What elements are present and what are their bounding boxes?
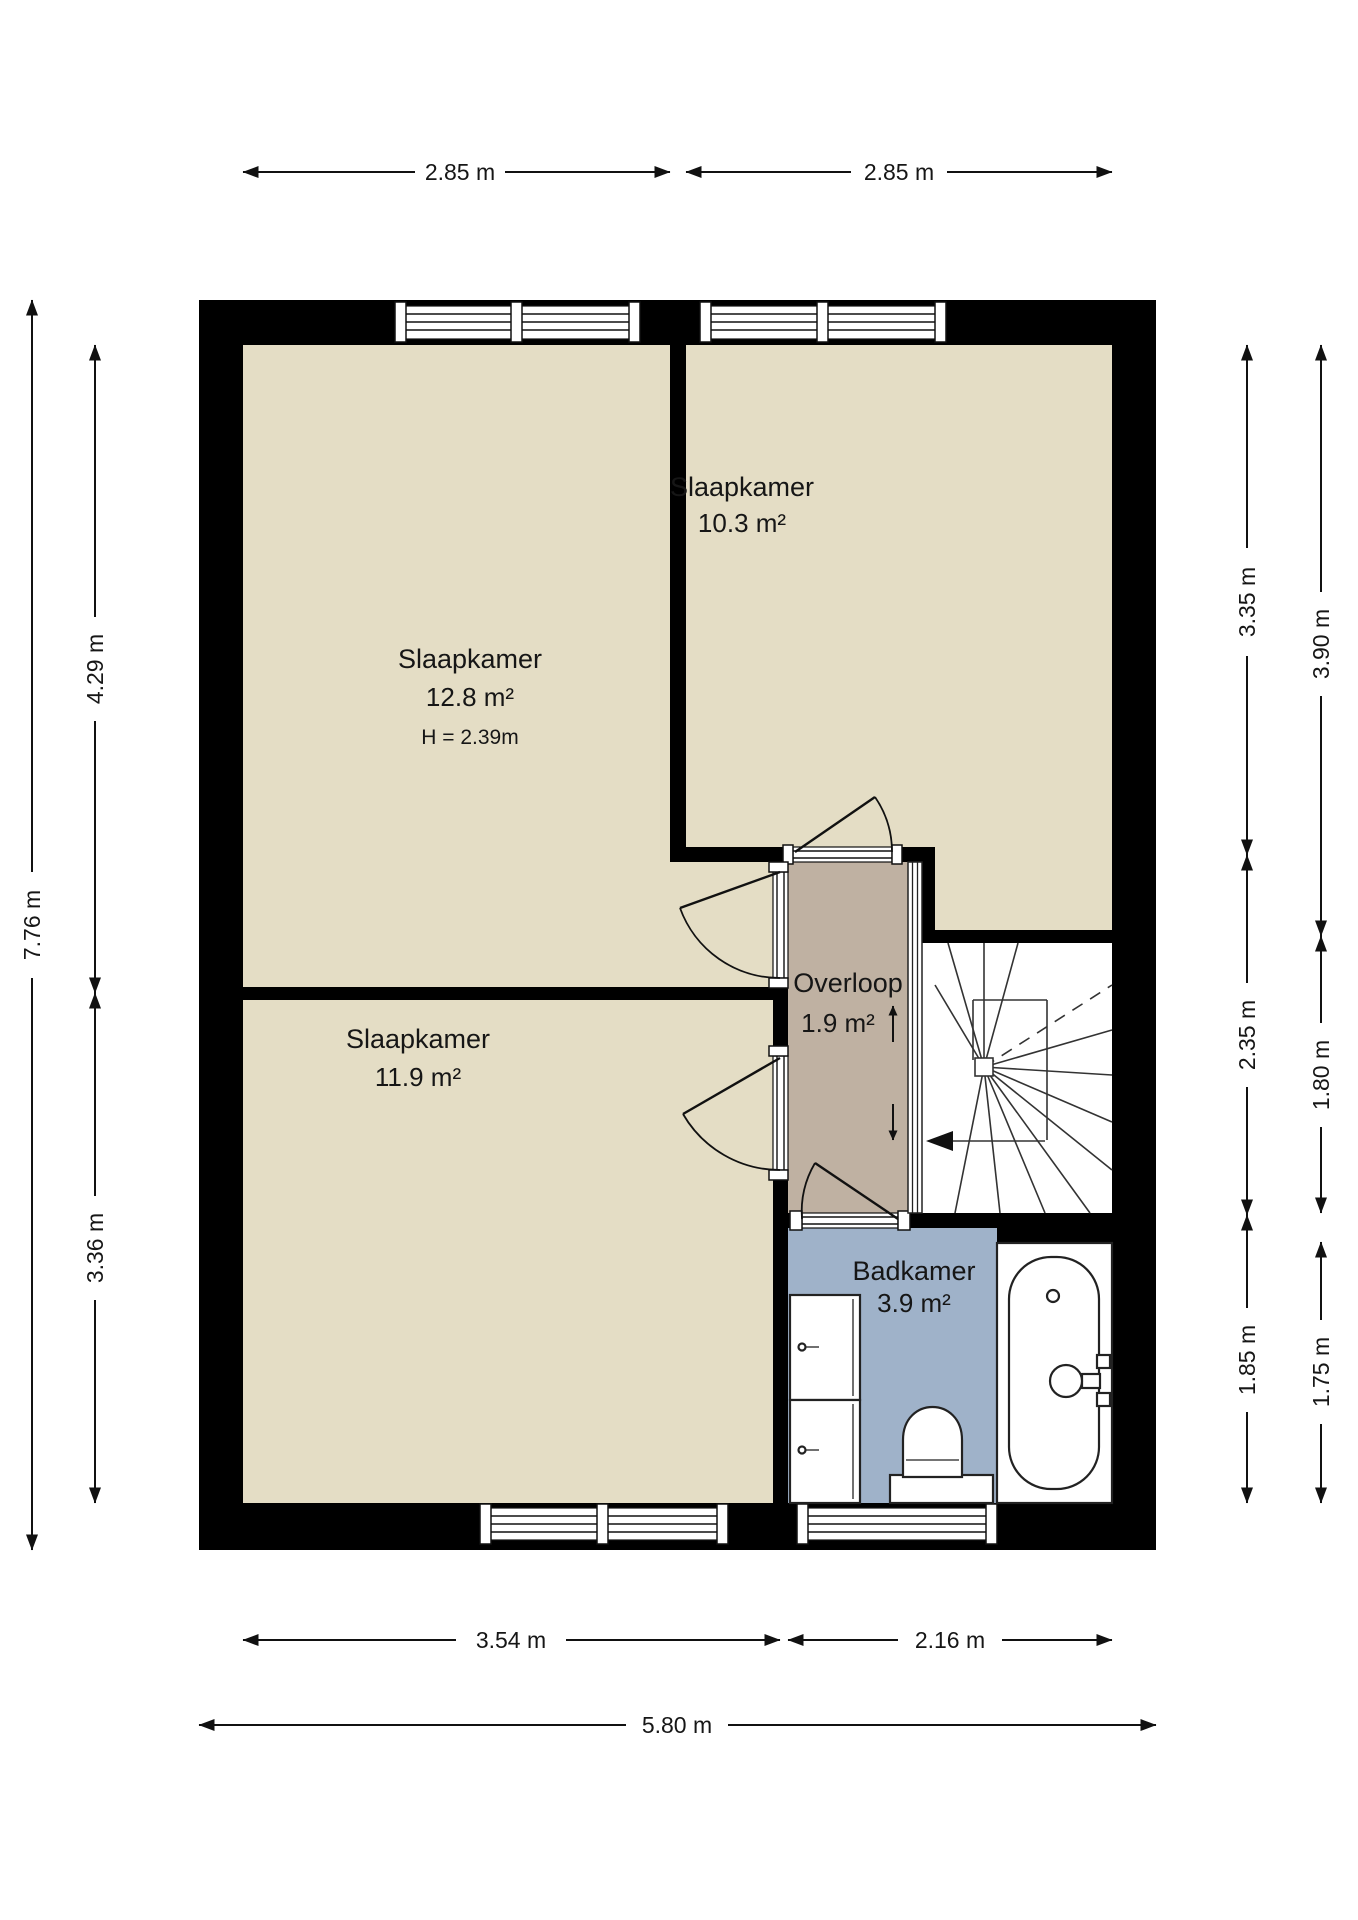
wall-exterior-top bbox=[199, 300, 1156, 345]
bedroom-3-name: Slaapkamer bbox=[346, 1024, 490, 1054]
dim-top-left: 2.85 m bbox=[243, 159, 670, 185]
wall-stairs-top bbox=[935, 930, 1112, 943]
floorplan-page: Slaapkamer 12.8 m² H = 2.39m Slaapkamer … bbox=[0, 0, 1358, 1920]
floorplan-drawing: Slaapkamer 12.8 m² H = 2.39m Slaapkamer … bbox=[0, 0, 1358, 1920]
wall-exterior-left bbox=[199, 300, 243, 1550]
bathroom-area: 3.9 m² bbox=[877, 1288, 951, 1318]
dim-right-outer-2: 1.80 m bbox=[1308, 936, 1334, 1213]
dim-bottom-left: 3.54 m bbox=[243, 1627, 780, 1653]
bedroom-1-name: Slaapkamer bbox=[398, 644, 542, 674]
stairs-floor bbox=[922, 943, 1112, 1213]
wall-exterior-right bbox=[1112, 300, 1156, 1550]
stairs-newel-post bbox=[975, 1058, 993, 1076]
svg-text:1.85 m: 1.85 m bbox=[1234, 1325, 1260, 1395]
svg-text:3.54 m: 3.54 m bbox=[476, 1627, 546, 1653]
svg-text:4.29 m: 4.29 m bbox=[82, 634, 108, 704]
dim-bottom-right: 2.16 m bbox=[788, 1627, 1112, 1653]
wall-bedrooms-divider bbox=[199, 987, 773, 1000]
svg-text:2.85 m: 2.85 m bbox=[864, 159, 934, 185]
svg-text:1.80 m: 1.80 m bbox=[1308, 1040, 1334, 1110]
svg-text:2.35 m: 2.35 m bbox=[1234, 1000, 1260, 1070]
bedroom-3-area: 11.9 m² bbox=[375, 1062, 462, 1092]
wall-center-divider bbox=[670, 345, 686, 847]
wall-landing-left-b bbox=[773, 978, 788, 1056]
dim-bottom-total: 5.80 m bbox=[199, 1712, 1156, 1738]
wall-stairs-left bbox=[922, 847, 935, 943]
svg-text:1.75 m: 1.75 m bbox=[1308, 1337, 1334, 1407]
landing-name: Overloop bbox=[793, 968, 903, 998]
bathtub bbox=[997, 1242, 1112, 1503]
window-bedroom-3 bbox=[480, 1504, 728, 1544]
dim-top-right: 2.85 m bbox=[686, 159, 1112, 185]
dim-right-outer-1: 3.90 m bbox=[1308, 345, 1334, 936]
window-bedroom-2 bbox=[700, 302, 946, 342]
bathtub-drain bbox=[1047, 1290, 1059, 1302]
bedroom-1-ceiling-note: H = 2.39m bbox=[421, 726, 518, 749]
svg-text:3.90 m: 3.90 m bbox=[1308, 609, 1334, 679]
svg-text:2.85 m: 2.85 m bbox=[425, 159, 495, 185]
svg-text:2.16 m: 2.16 m bbox=[915, 1627, 985, 1653]
bedroom-2-name: Slaapkamer bbox=[670, 472, 814, 502]
dim-left-inner-top: 4.29 m bbox=[82, 345, 108, 993]
bedroom-2-floor bbox=[686, 345, 1112, 930]
dim-right-inner-2: 2.35 m bbox=[1234, 855, 1260, 1215]
vanity-cabinet-1 bbox=[790, 1295, 860, 1400]
dim-left-outer: 7.76 m bbox=[19, 300, 45, 1550]
dim-left-inner-bottom: 3.36 m bbox=[82, 993, 108, 1503]
bedroom-3-floor bbox=[243, 1000, 773, 1503]
dim-right-outer-3: 1.75 m bbox=[1308, 1242, 1334, 1503]
bedroom-2-area: 10.3 m² bbox=[698, 508, 786, 538]
dim-right-inner-3: 1.85 m bbox=[1234, 1215, 1260, 1503]
bedroom-1-area: 12.8 m² bbox=[426, 682, 514, 712]
wall-bathtub-top bbox=[997, 1228, 1112, 1242]
wall-landing-top-left bbox=[670, 847, 793, 862]
bathroom-name: Badkamer bbox=[852, 1256, 975, 1286]
window-bedroom-1 bbox=[395, 302, 640, 342]
vanity-cabinet-2 bbox=[790, 1400, 860, 1503]
svg-text:3.35 m: 3.35 m bbox=[1234, 567, 1260, 637]
landing-area: 1.9 m² bbox=[801, 1008, 875, 1038]
window-bathroom bbox=[797, 1504, 997, 1544]
svg-text:3.36 m: 3.36 m bbox=[82, 1213, 108, 1283]
svg-text:7.76 m: 7.76 m bbox=[19, 890, 45, 960]
wall-bathroom-top-right bbox=[898, 1213, 1112, 1228]
svg-text:5.80 m: 5.80 m bbox=[642, 1712, 712, 1738]
stairs-railing bbox=[908, 862, 922, 1213]
dim-right-inner-1: 3.35 m bbox=[1234, 345, 1260, 855]
